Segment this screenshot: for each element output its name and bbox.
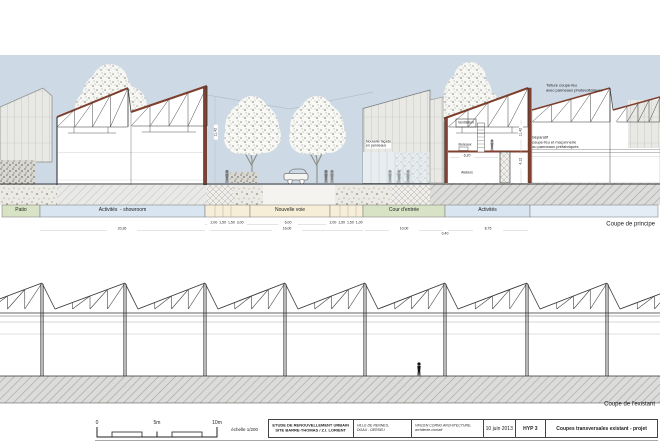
room-label-ateliers: Ateliers [460,171,475,175]
existing-facade-sliver [430,97,443,183]
existing-section [0,283,660,403]
titleblock-drawing-title-cell: Coupes transversales existant - projet [545,420,658,437]
dim-height-left: 11,42 [213,124,217,139]
scalebar-zero: 0 [94,420,100,426]
title-block: ETUDE DE RENOUVELLEMENT URBAIN SITE BARR… [268,419,658,438]
architectural-sheet: Patio Activités - showroom Nouvelle voie… [0,0,660,443]
titleblock-date: 10 juin 2013 [486,425,513,432]
dim-gap: 0,40 [433,232,458,236]
principle-ground [0,183,660,205]
scalebar-five: 5m [153,420,161,426]
hedge [230,172,258,183]
titleblock-date-cell: 10 juin 2013 [483,420,515,437]
room-label-ventilation: Ventilation [458,121,474,125]
dim-mezzanine-height: 4,12 [519,153,523,168]
person-icon [417,362,420,375]
zone-label-nouvelle-voie: Nouvelle voie [270,207,310,213]
titleblock-hypothesis-cell: HYP 3 [515,420,545,437]
zone-label-activites: Activités [466,207,509,213]
titleblock-drawing-title: Coupes transversales existant - projet [556,425,647,432]
dim-height-right: 11,42 [519,124,523,139]
scalebar-scale-label: échelle 1/200 [218,427,258,432]
titleblock-architect: VINCEN CORNU ARCHITECTURE, architecte-co… [415,424,471,433]
annotation-wall: Séparatif coupe-feu et maçonnerie ou pan… [532,135,578,149]
scalebar-ten: 10m [212,420,223,426]
zone-label-cour-entree: Cour d'entrée [384,207,425,213]
room-label-bureaux: Bureaux [458,143,473,147]
zone-label-showroom: Activités - showroom [81,207,164,213]
caption-coupe-principe: Coupe de principe [588,220,656,227]
dim-ateliers-width: 6,20 [460,154,475,158]
dim-voie-total: 16,00 [272,227,302,231]
dim-activites-total: 8,75 [473,227,503,231]
titleblock-project-cell: ETUDE DE RENOUVELLEMENT URBAIN SITE BARR… [269,420,353,437]
dim-right-cluster: 2,00 1,50 1,50 1,00 [326,221,366,225]
dim-voie-width: 6,00 [278,221,298,225]
titleblock-client-cell: VILLE DE RENNES, DGAU - DERSEU [353,420,411,437]
titleblock-architect-cell: VINCEN CORNU ARCHITECTURE, architecte-co… [411,420,483,437]
scale-bar [97,427,217,437]
titleblock-client: VILLE DE RENNES, DGAU - DERSEU [357,424,389,433]
caption-coupe-existant: Coupe de l'existant [588,400,656,407]
annotation-roof: Toiture coupe-feu avec panneaux photovol… [546,83,602,93]
dim-cour-total: 10,00 [389,227,419,231]
annotation-facade: Nouvelle façade en panneaux [366,140,391,148]
dim-showroom-total: 20,26 [107,227,137,231]
titleblock-hypothesis: HYP 3 [523,425,537,432]
titleblock-project: ETUDE DE RENOUVELLEMENT URBAIN SITE BARR… [273,423,350,433]
dim-left-cluster: 2,00 1,50 1,50 3,00 [207,221,247,225]
zone-label-patio: Patio [12,207,31,213]
